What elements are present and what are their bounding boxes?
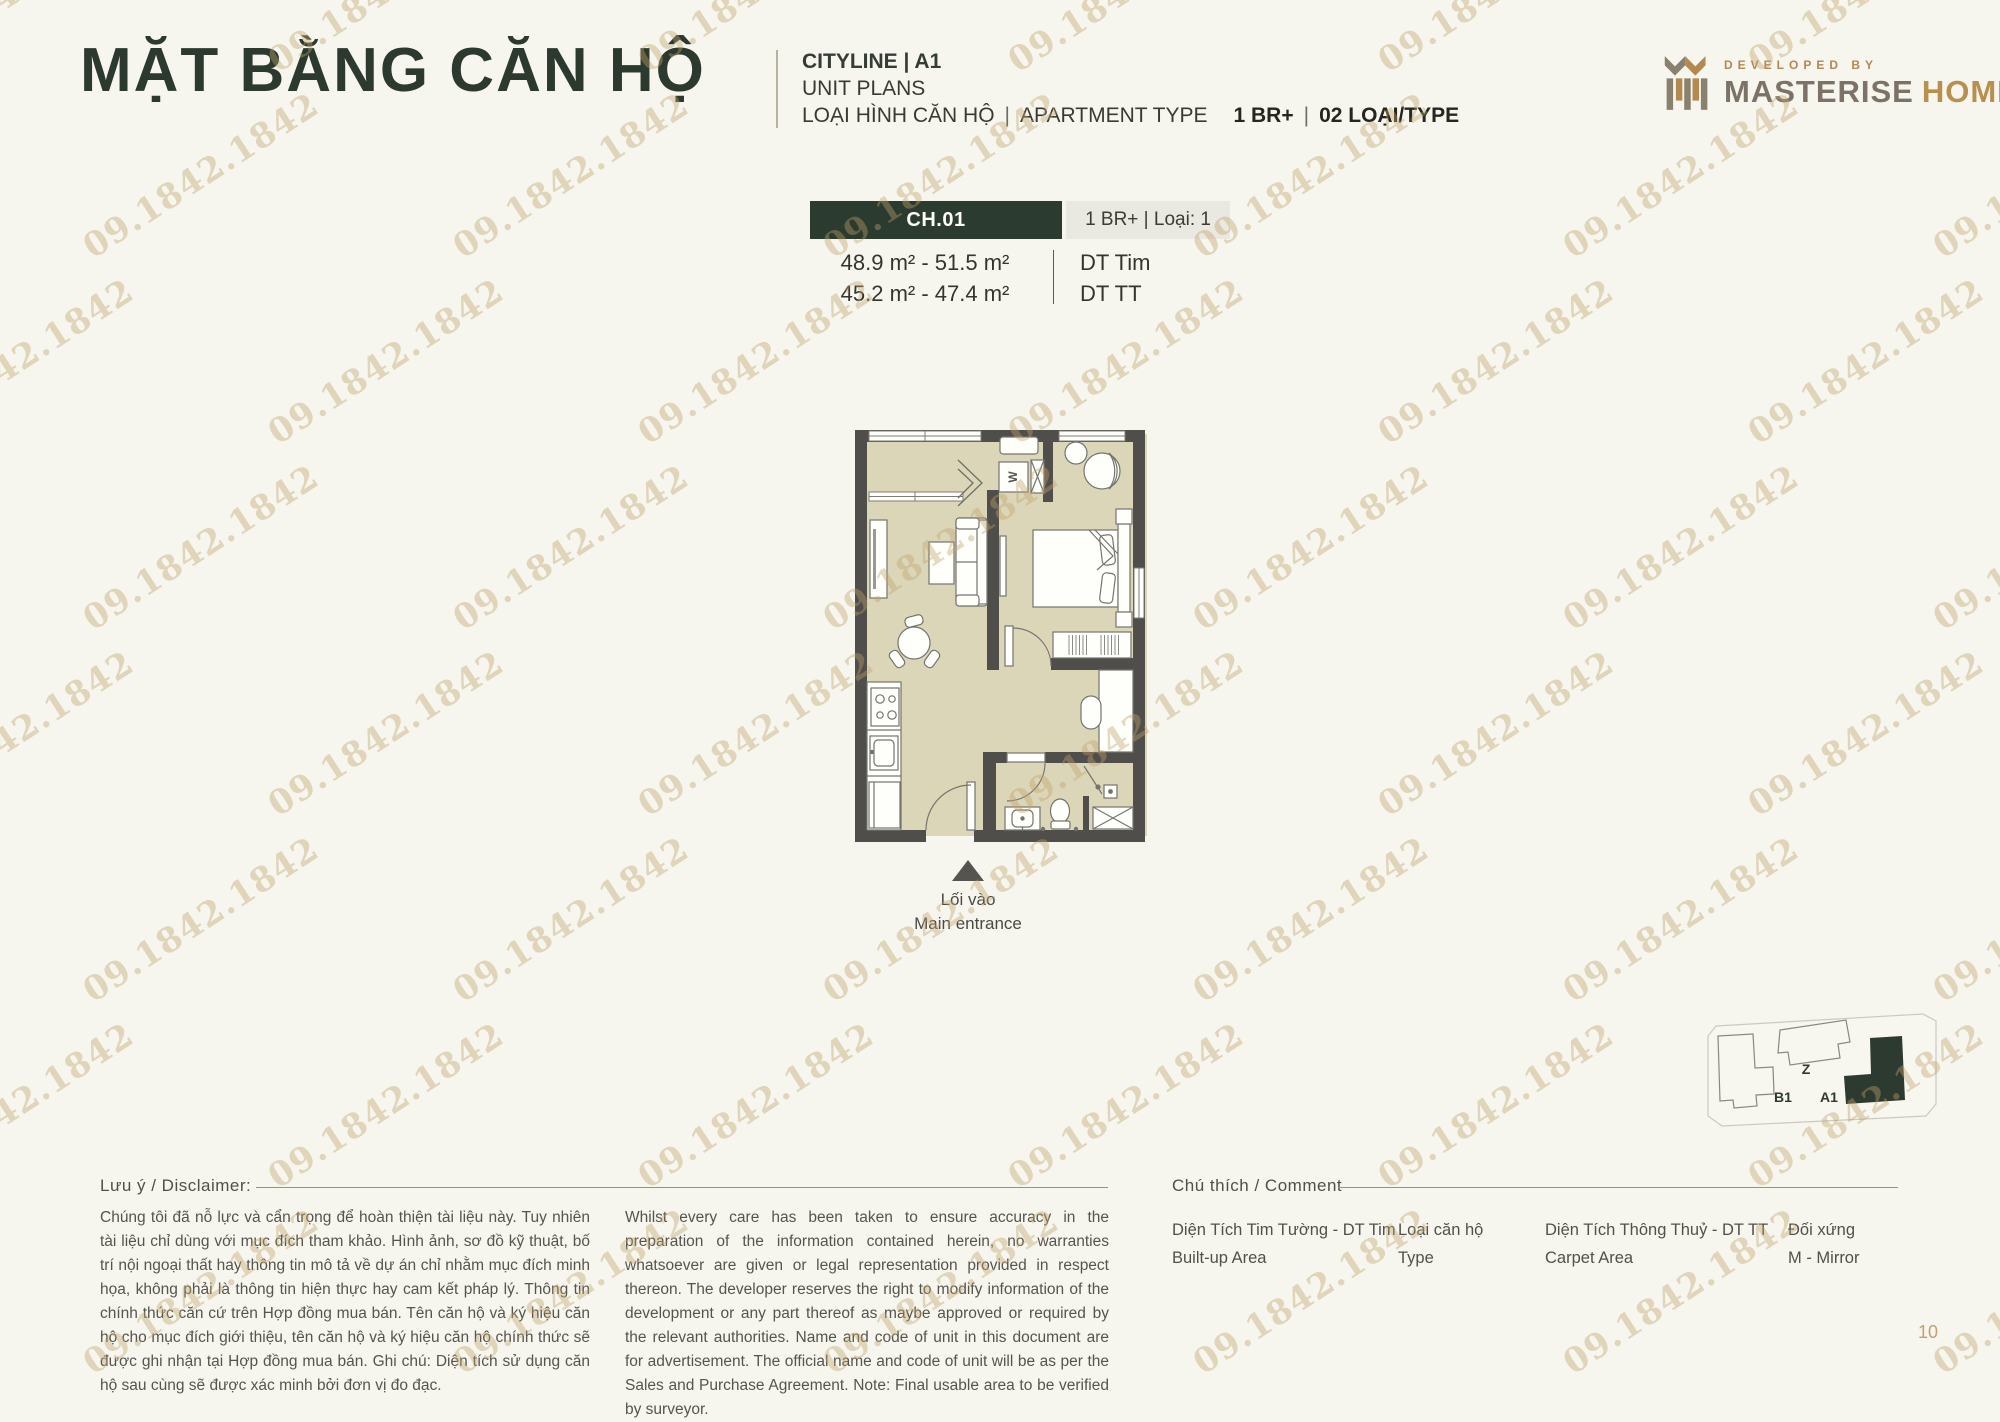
nightstand-top [1116,509,1132,524]
vanity-sink [1005,807,1040,831]
sofa [956,518,987,606]
type-count: 02 LOẠI/TYPE [1319,104,1459,127]
watermark-text: 09.1842.1842 [1926,457,2000,639]
coffee-table [929,542,954,584]
project-name: CITYLINE | A1 [802,48,1459,75]
page-title: MẶT BẰNG CĂN HỘ [80,40,706,102]
type-label-en: APARTMENT TYPE [1020,104,1208,127]
apartment-type-line: LOẠI HÌNH CĂN HỘ|APARTMENT TYPE1 BR+|02 … [802,102,1459,129]
entrance-arrow-icon [952,860,984,881]
watermark-text: 09.1842.1842 [446,457,696,639]
type-label-vn: LOẠI HÌNH CĂN HỘ [802,104,995,127]
legend-vn: Diện Tích Tim Tường - DT Tim [1172,1216,1396,1244]
header-divider [776,50,778,128]
watermark-text: 09.1842.1842 [1186,829,1436,1011]
shelf [1000,437,1038,454]
fridge [869,782,900,828]
pipe-separator: | [995,104,1020,127]
site-label-z: Z [1802,1061,1811,1077]
watermark-text: 09.1842.1842 [1741,271,1991,453]
side-table [1065,442,1087,464]
watermark-text: 09.1842.1842 [446,829,696,1011]
watermark-text: 09.1842.1842 [76,829,326,1011]
watermark-text: 09.1842.1842 [1371,1015,1621,1197]
legend-carpet-area: Diện Tích Thông Thuỷ - DT TT Carpet Area [1545,1216,1768,1272]
site-label-b1: B1 [1774,1089,1792,1105]
legend-vn: Đối xứng [1788,1216,1859,1244]
brand-masterise: MASTERISE [1724,74,1914,109]
watermark-text: 09.1842.1842 [1926,829,2000,1011]
disclaimer-vn: Chúng tôi đã nỗ lực và cẩn trọng để hoàn… [100,1206,590,1398]
carpet-area-value: 45.2 m² - 47.4 m² [810,278,1040,309]
unit-card-divider [1053,250,1054,304]
disclaimer-rule [256,1187,1108,1188]
watermark-text: 09.1842.1842 [631,643,881,825]
watermark-text: 09.1842.1842 [1186,457,1436,639]
watermark-text: 09.1842.1842 [1371,643,1621,825]
built-up-area-value: 48.9 m² - 51.5 m² [810,247,1040,278]
brand-homes: HOMES [1922,74,2000,109]
floor-drain [1104,785,1117,798]
legend-built-up-area: Diện Tích Tim Tường - DT Tim Built-up Ar… [1172,1216,1396,1272]
bedroom-tv [1000,536,1006,596]
washer-label: W [1006,471,1020,483]
disclaimer-heading: Lưu ý / Disclaimer: [100,1176,251,1196]
legend-en: Type [1398,1244,1483,1272]
watermark-text: 09.1842.1842 [1556,457,1806,639]
shaft-box [1031,460,1044,493]
floor-plan: W [855,430,1155,850]
utility-niche: W [999,437,1044,493]
header-info-block: CITYLINE | A1 UNIT PLANS LOẠI HÌNH CĂN H… [802,48,1459,129]
legend-rule [1338,1187,1898,1188]
legend-vn: Diện Tích Thông Thuỷ - DT TT [1545,1216,1768,1244]
built-up-area-label: DT Tim [1080,247,1150,278]
watermark-text: 09.1842.1842 [1741,643,1991,825]
bed [1033,524,1130,612]
shower-tray [1093,807,1133,829]
unit-area-labels: DT Tim DT TT [1080,247,1150,309]
wardrobe [1053,632,1131,658]
type-value: 1 BR+ [1208,104,1294,127]
legend-type: Loại căn hộ Type [1398,1216,1483,1272]
developer-logo: DEVELOPED BY MASTERISEHOMES [1662,52,2000,114]
site-label-a1: A1 [1820,1089,1838,1105]
legend-en: M - Mirror [1788,1244,1859,1272]
kitchen-sink [870,736,898,770]
entrance-label: Lối vào Main entrance [868,888,1068,936]
watermark-text: 09.1842.1842 [631,1015,881,1197]
unit-type-cell: 1 BR+ | Loại: 1 [1066,201,1230,239]
pipe-separator-2: | [1294,104,1319,127]
nightstand-bottom [1116,612,1132,627]
brand-name: MASTERISEHOMES [1724,74,2000,110]
brochure-page: { "watermark": { "text": "09.1842.1842" … [0,0,2000,1379]
watermark-text: 09.1842.1842 [0,643,141,825]
unit-plans-subtitle: UNIT PLANS [802,75,1459,102]
logo-text: DEVELOPED BY MASTERISEHOMES [1724,52,2000,110]
watermark-text: 09.1842.1842 [0,1015,141,1197]
legend-en: Built-up Area [1172,1244,1396,1272]
page-number: 10 [1918,1322,1938,1343]
unit-areas: 48.9 m² - 51.5 m² 45.2 m² - 47.4 m² [810,247,1040,309]
watermark-text: 09.1842.1842 [446,85,696,267]
entrance-label-en: Main entrance [868,912,1068,936]
watermark-text: 09.1842.1842 [76,457,326,639]
watermark-text: 09.1842.1842 [1001,1015,1251,1197]
unit-code-badge: CH.01 [810,201,1062,239]
watermark-text: 09.1842.1842 [261,643,511,825]
watermark-text: 09.1842.1842 [1556,829,1806,1011]
tv-cabinet [870,520,887,598]
watermark-text: 09.1842.1842 [1926,1201,2000,1379]
legend-vn: Loại căn hộ [1398,1216,1483,1244]
developed-by-label: DEVELOPED BY [1724,58,2000,72]
watermark-text: 09.1842.1842 [261,1015,511,1197]
armchair [1084,453,1120,489]
desk [1099,670,1133,752]
carpet-area-label: DT TT [1080,278,1150,309]
legend-heading: Chú thích / Comment [1172,1176,1342,1196]
legend-en: Carpet Area [1545,1244,1768,1272]
desk-chair [1081,696,1101,729]
masterise-logo-icon [1662,52,1712,114]
stove [871,688,899,726]
watermark-text: 09.1842.1842 [76,85,326,267]
disclaimer-en: Whilst every care has been taken to ensu… [625,1206,1109,1422]
legend-mirror: Đối xứng M - Mirror [1788,1216,1859,1272]
site-map: Z B1 A1 [1698,1008,1960,1148]
watermark-text: 09.1842.1842 [1371,271,1621,453]
washing-machine: W [999,462,1028,492]
watermark-text: 09.1842.1842 [261,271,511,453]
kitchen [867,682,901,830]
entrance-label-vn: Lối vào [868,888,1068,912]
watermark-text: 09.1842.1842 [0,271,141,453]
